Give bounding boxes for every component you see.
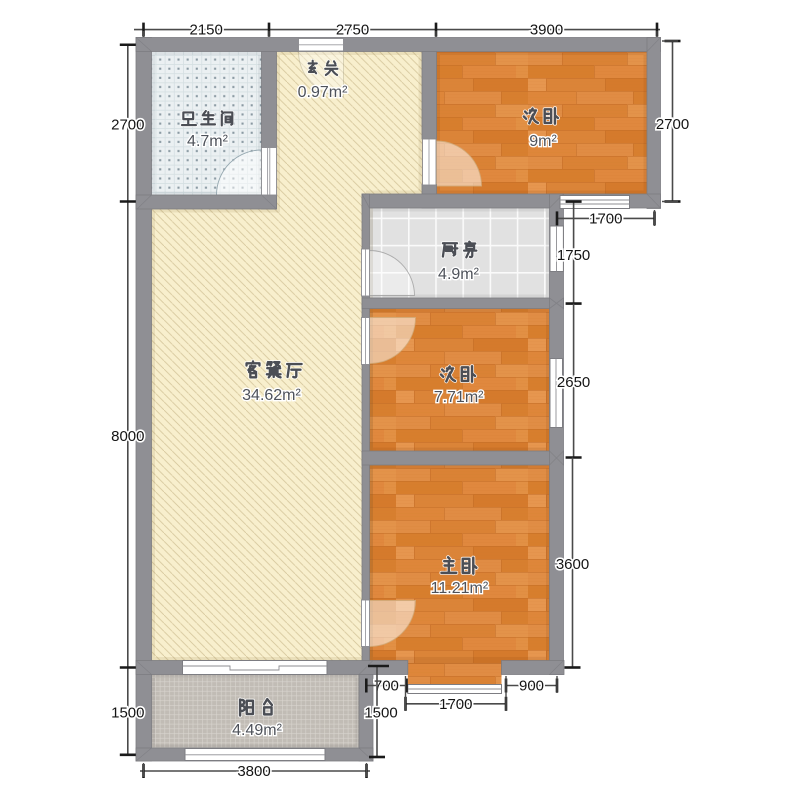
svg-text:1700: 1700 — [589, 210, 622, 227]
svg-text:1750: 1750 — [557, 247, 590, 264]
svg-text:34.62m²: 34.62m² — [242, 387, 301, 404]
svg-text:1500: 1500 — [364, 705, 397, 722]
svg-text:4.7m²: 4.7m² — [187, 133, 229, 150]
svg-text:1700: 1700 — [439, 696, 472, 713]
svg-text:2700: 2700 — [656, 116, 689, 133]
svg-text:3900: 3900 — [530, 22, 563, 39]
svg-text:2650: 2650 — [557, 374, 590, 391]
svg-text:900: 900 — [519, 678, 544, 695]
svg-text:2750: 2750 — [336, 22, 369, 39]
svg-text:2700: 2700 — [111, 117, 144, 134]
svg-text:0.97m²: 0.97m² — [298, 84, 348, 101]
svg-text:1500: 1500 — [111, 705, 144, 722]
svg-text:4.49m²: 4.49m² — [232, 722, 282, 739]
svg-text:8000: 8000 — [111, 428, 144, 445]
svg-text:4.9m²: 4.9m² — [438, 266, 480, 283]
svg-text:11.21m²: 11.21m² — [431, 580, 489, 597]
svg-text:3600: 3600 — [556, 556, 589, 573]
svg-text:7.71m²: 7.71m² — [434, 389, 484, 406]
svg-text:3800: 3800 — [237, 763, 270, 780]
svg-text:2150: 2150 — [190, 22, 223, 39]
svg-text:9m²: 9m² — [529, 133, 557, 150]
